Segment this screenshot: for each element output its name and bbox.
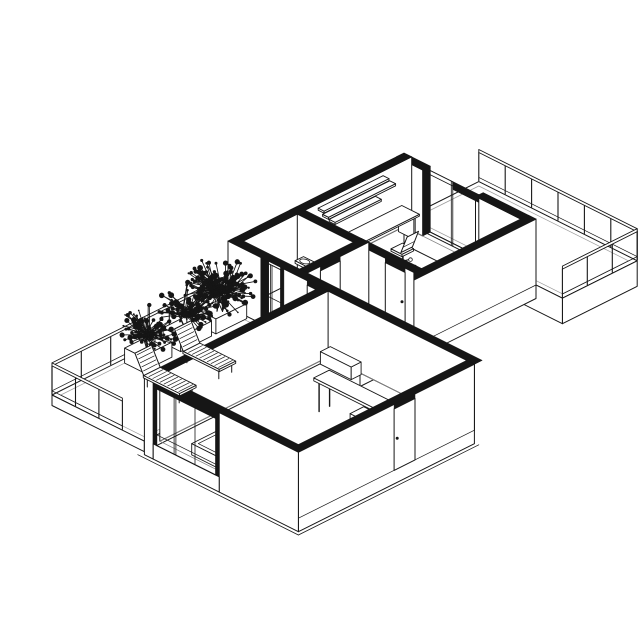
plant-leaf [198,308,203,313]
plant-leaf [223,261,228,266]
plant-leaf [229,279,233,283]
plant-leaf [248,287,250,289]
plant-leaf [207,316,211,320]
plant-leaf [179,321,181,323]
plant-leaf [137,320,140,323]
plant-leaf [195,301,198,304]
plant-leaf [200,297,205,302]
plant-leaf [254,280,258,284]
plant-leaf [171,341,176,346]
plant-leaf [215,262,218,265]
plant-leaf [196,314,201,319]
door-handle [401,300,404,303]
plant-leaf [152,318,156,322]
plant-leaf [167,319,171,323]
plant-leaf [168,292,174,298]
plant-leaf [248,273,253,278]
entry-se-wall [298,364,474,532]
plant-leaf [191,285,195,289]
plant-leaf [229,270,233,274]
plant-leaf [163,333,166,336]
axon-svg [0,0,640,640]
plant-leaf [126,313,130,317]
plant-leaf [124,318,129,323]
axonometric-floor-plan [0,0,640,640]
plant-leaf [205,321,207,323]
plant-leaf [240,274,242,276]
plant-leaf [197,275,199,277]
plant-leaf [120,332,125,337]
plant-leaf [226,280,228,282]
facade-glass-jamb [261,254,269,324]
chair-caster [409,258,413,262]
plant-leaf [123,338,126,341]
plant-leaf [232,287,234,289]
plant-leaf [225,302,228,305]
plant-leaf [211,315,214,318]
plant-leaf [161,294,164,297]
plant-leaf [186,289,188,291]
plant-leaf [199,325,202,328]
plant-leaf [150,329,154,333]
plant-leaf [213,270,216,273]
plant-leaf [235,259,240,264]
plant-leaf [232,276,236,280]
plant-leaf [171,299,173,301]
plant-leaf [232,281,237,286]
plant-leaf [159,317,163,321]
plant-leaf [122,325,124,327]
plant-leaf [207,261,211,265]
plant-leaf [176,307,180,311]
plant-leaf [158,310,162,314]
plant-leaf [193,267,197,271]
plant-leaf [228,264,232,268]
plant-leaf [211,302,213,304]
plant-leaf [157,342,161,346]
plant-leaf [160,325,166,331]
plant-leaf [171,306,175,310]
window-jamb [216,418,220,476]
plant-leaf [184,294,187,297]
plant-leaf [202,318,204,320]
plant-leaf [205,310,209,314]
plant-leaf [161,347,166,352]
plant-leaf [230,291,232,293]
plant-leaf [241,285,244,288]
plant-leaf [242,301,246,305]
plant-leaf [144,317,146,319]
plant-leaf [138,310,140,312]
living-sw-wall [144,375,153,459]
plant-leaf [191,278,194,281]
plant-leaf [207,303,211,307]
door-handle [396,437,399,440]
plant-leaf [188,272,190,274]
plant-leaf [223,301,225,303]
plant-leaf [185,280,190,285]
plant-leaf [220,277,224,281]
plant-leaf [124,314,125,315]
plant-leaf [237,312,239,314]
plant-leaf [133,313,135,315]
plant-leaf [147,303,151,307]
plant-leaf [128,337,132,341]
plant-leaf [214,304,219,309]
plant-leaf [140,340,144,344]
plant-leaf [194,310,198,314]
plant-leaf [166,308,170,312]
plant-leaf [171,314,176,319]
plant-leaf [162,303,166,307]
plant-leaf [235,292,238,295]
plant-leaf [132,322,136,326]
plant-leaf [200,259,203,262]
window-jamb [153,387,157,446]
plant-leaf [197,265,203,271]
glass-door-jamb [423,166,431,236]
plant-leaf [205,270,209,274]
plant-leaf [194,295,200,301]
plant-leaf [209,298,211,300]
plant-leaf [192,305,194,307]
plant-leaf [206,274,208,276]
plant-leaf [142,317,143,318]
plant-leaf [200,285,203,288]
plant-leaf [227,312,231,316]
plant-leaf [241,297,243,299]
entry-door [394,398,415,470]
plant-leaf [206,266,209,269]
plant-leaf [231,268,233,270]
plant-leaf [168,327,173,332]
plant-leaf [214,279,219,284]
plant-leaf [154,348,156,350]
plant-leaf [249,292,252,295]
plant-leaf [124,328,127,331]
plant-leaf [244,271,248,275]
